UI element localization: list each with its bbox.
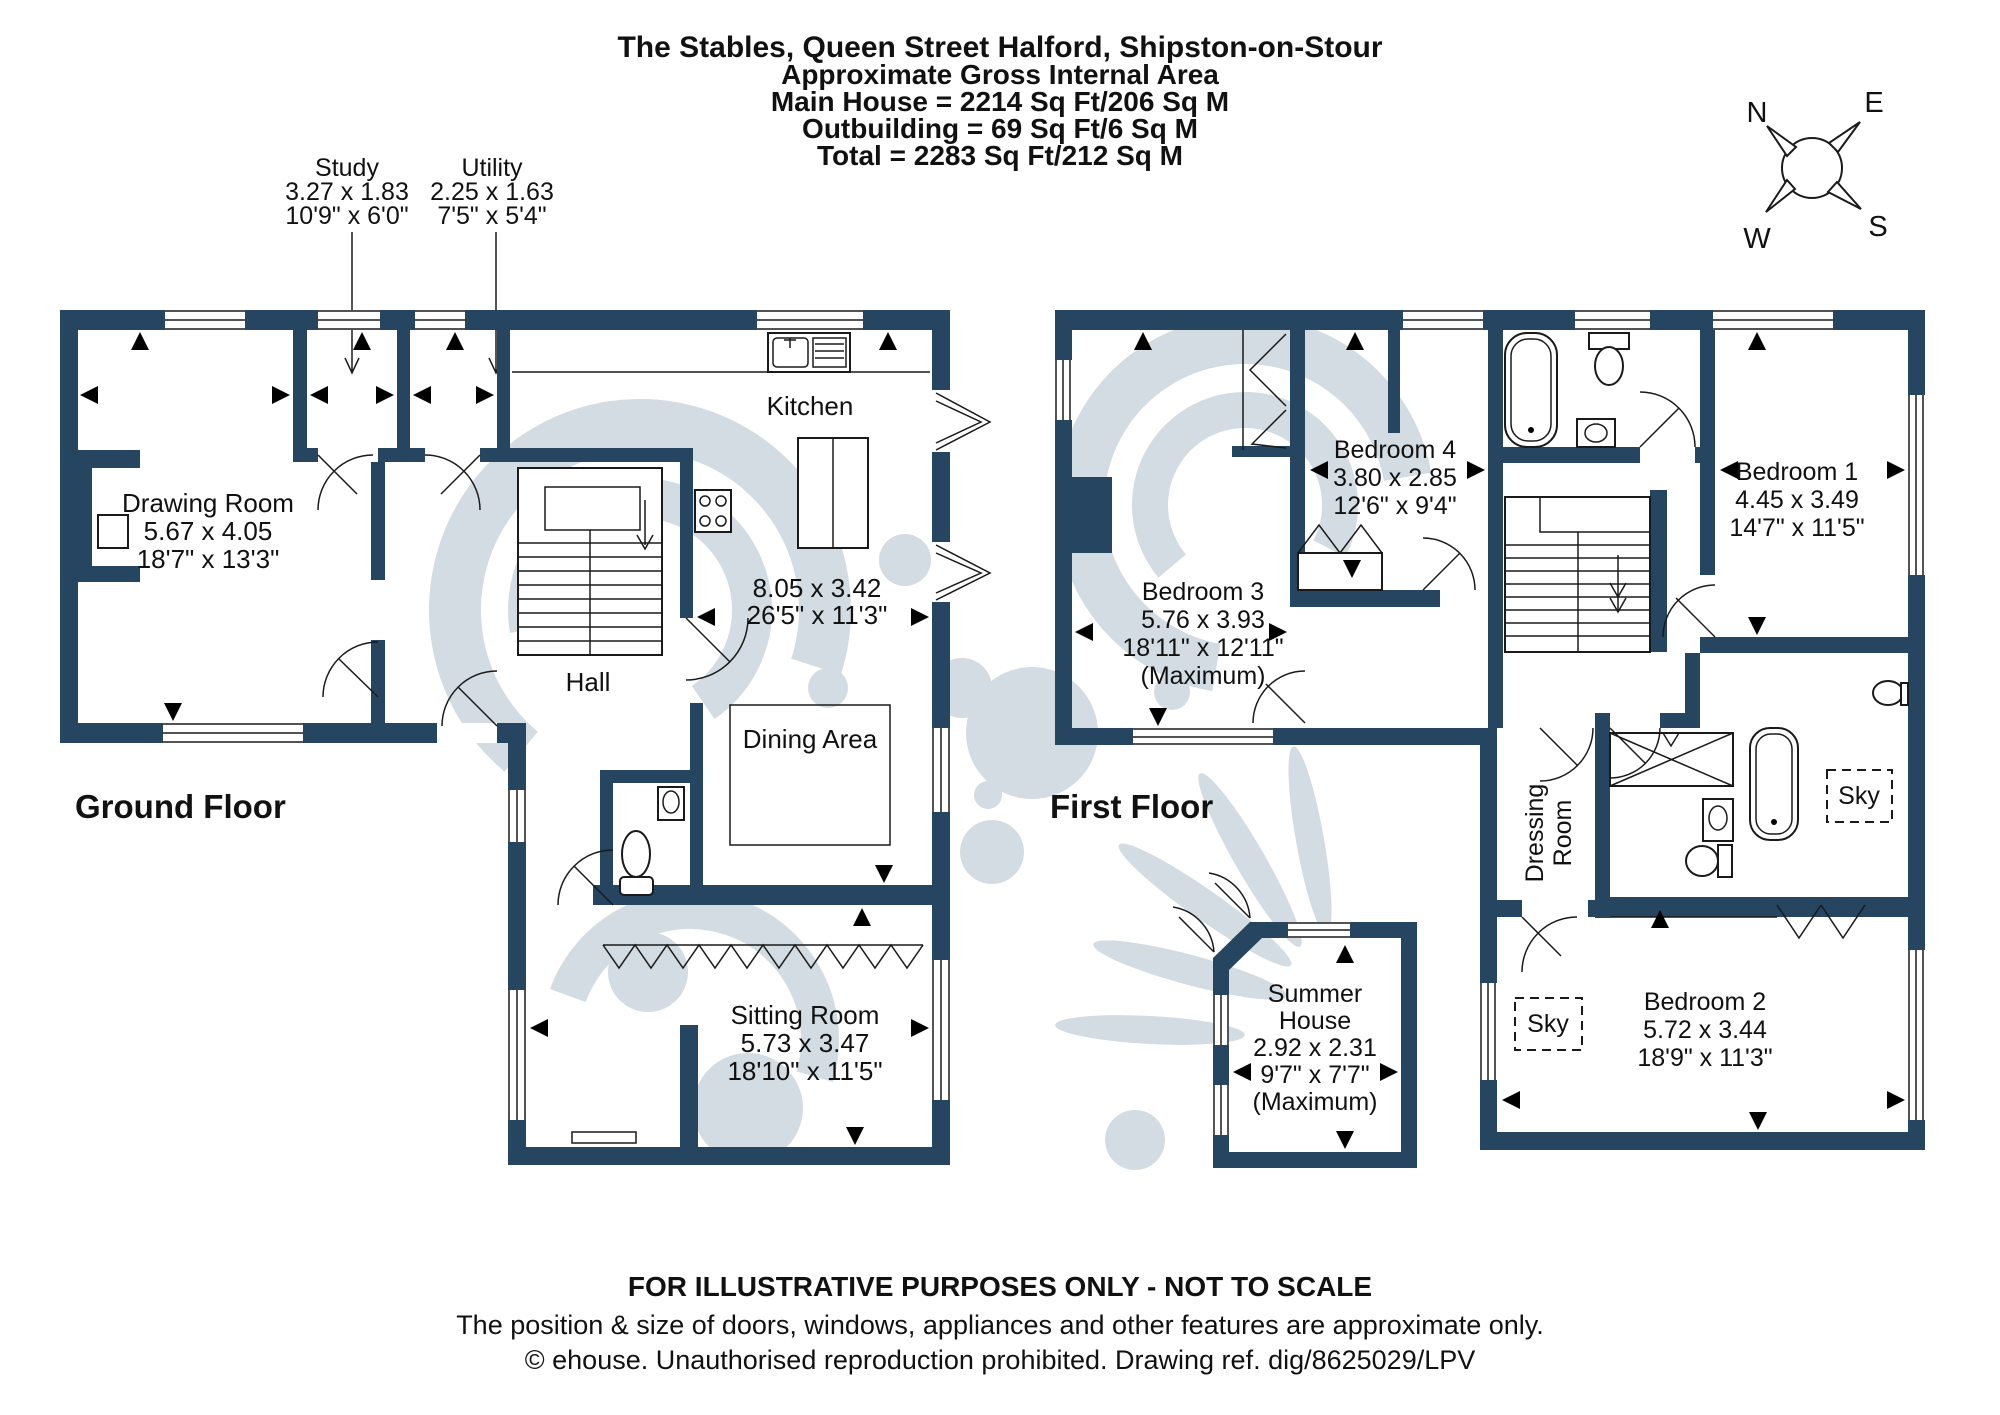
dressing-line2: Room: [1549, 800, 1577, 867]
compass-e-label: E: [1864, 87, 1883, 119]
sitting-room-label: Sitting Room: [731, 1000, 880, 1030]
sitting-room-metric: 5.73 x 3.47: [741, 1028, 870, 1058]
skylight-2: Sky: [1515, 998, 1582, 1050]
footer-line-1: FOR ILLUSTRATIVE PURPOSES ONLY - NOT TO …: [628, 1271, 1372, 1302]
ensuite-toilet: [1686, 845, 1732, 877]
compass-arrow-ne: [1829, 122, 1860, 152]
summer-house-note: (Maximum): [1253, 1088, 1378, 1116]
title-block: The Stables, Queen Street Halford, Ships…: [617, 31, 1382, 171]
drawing-hall-wall: [371, 462, 385, 580]
hall-label: Hall: [566, 667, 611, 697]
bedroom2-imperial: 18'9" x 11'3": [1637, 1044, 1772, 1072]
compass-arrow-sw: [1766, 180, 1795, 212]
ensuite-shower: [1610, 733, 1733, 786]
kitchen-island: [798, 438, 868, 548]
landing-stairs: [1505, 497, 1650, 652]
wc-basin: [658, 787, 684, 820]
bedroom3-chimney: [1072, 477, 1112, 553]
ensuite-basin: [1703, 799, 1733, 841]
kitchen-label: Kitchen: [767, 391, 854, 421]
ensuite-bath: [1750, 728, 1798, 840]
bedroom2-metric: 5.72 x 3.44: [1643, 1016, 1767, 1044]
sitting-room-stub: [680, 1025, 698, 1147]
bedroom1-wall: [1700, 328, 1715, 575]
compass-w-label: W: [1743, 223, 1771, 255]
corner-basin: [1873, 681, 1908, 705]
bedroom1-metric: 4.45 x 3.49: [1735, 486, 1859, 514]
utility-kitchen-wall: [497, 328, 510, 448]
utility-imperial: 7'5" x 5'4": [437, 202, 546, 230]
title-line-5: Total = 2283 Sq Ft/212 Sq M: [817, 140, 1183, 171]
bathroom-toilet: [1589, 333, 1629, 385]
dressing-line1: Dressing: [1521, 784, 1549, 883]
bedroom4-imperial: 12'6" x 9'4": [1333, 492, 1456, 520]
compass-arrow-se: [1828, 182, 1861, 209]
bedroom3-imperial: 18'11" x 12'11": [1122, 634, 1283, 662]
first-floor-label: First Floor: [1050, 788, 1213, 825]
dressing-room-label: Dressing Room: [1521, 784, 1577, 883]
summer-house-line2: House: [1279, 1007, 1351, 1035]
skylight-2-label: Sky: [1527, 1010, 1569, 1038]
kitchen-dining-metric: 8.05 x 3.42: [753, 573, 882, 603]
dressing-ensuite-wall: [1595, 728, 1610, 918]
ground-stairs: [518, 468, 662, 655]
bedroom4-label: Bedroom 4: [1334, 436, 1456, 464]
wc-wall: [600, 770, 703, 783]
footer-line-3: © ehouse. Unauthorised reproduction proh…: [525, 1345, 1476, 1375]
skylight-1: Sky: [1827, 770, 1892, 822]
bedroom3-metric: 5.76 x 3.93: [1141, 606, 1265, 634]
compass-arrow-nw: [1767, 126, 1796, 156]
utility-callout: Utility 2.25 x 1.63 7'5" x 5'4": [430, 154, 554, 373]
floorplan-drawing: The Stables, Queen Street Halford, Ships…: [0, 0, 2000, 1415]
summer-house-imperial: 9'7" x 7'7": [1260, 1061, 1369, 1089]
ground-floor-label: Ground Floor: [75, 788, 286, 825]
kitchen-dining-imperial: 26'5" x 11'3": [747, 600, 888, 630]
compass-rose: N E S W: [1743, 87, 1887, 255]
bedroom1-imperial: 14'7" x 11'5": [1729, 514, 1864, 542]
dining-area-label: Dining Area: [743, 724, 878, 754]
drawing-room-imperial: 18'7" x 13'3": [137, 544, 280, 574]
skylight-1-label: Sky: [1838, 782, 1880, 810]
drawing-room-label: Drawing Room: [122, 488, 294, 518]
bedroom3-label: Bedroom 3: [1142, 578, 1264, 606]
drawing-study-wall: [293, 328, 307, 462]
bedroom3-note: (Maximum): [1141, 662, 1266, 690]
kitchen-sink: [768, 333, 850, 372]
sitting-room-imperial: 18'10" x 11'5": [727, 1056, 882, 1086]
bedroom4-metric: 3.80 x 2.85: [1333, 464, 1457, 492]
bedroom2-label: Bedroom 2: [1644, 988, 1766, 1016]
footer-block: FOR ILLUSTRATIVE PURPOSES ONLY - NOT TO …: [456, 1271, 1544, 1375]
summer-house-metric: 2.92 x 2.31: [1253, 1034, 1377, 1062]
ensuite-bedroom2-wall: [1595, 897, 1908, 917]
footer-line-2: The position & size of doors, windows, a…: [456, 1310, 1544, 1340]
wc-toilet: [620, 831, 653, 895]
bedroom1-label: Bedroom 1: [1736, 458, 1858, 486]
bathroom-basin: [1577, 419, 1615, 447]
floorplan-page: The Stables, Queen Street Halford, Ships…: [0, 0, 2000, 1415]
kitchen-hall-wall: [680, 448, 693, 618]
bathroom-bath: [1505, 333, 1557, 447]
drawing-room-metric: 5.67 x 4.05: [144, 516, 273, 546]
summer-house-line1: Summer: [1268, 980, 1362, 1008]
study-utility-wall: [397, 328, 410, 448]
compass-s-label: S: [1868, 211, 1887, 243]
compass-n-label: N: [1747, 97, 1768, 129]
study-imperial: 10'9" x 6'0": [285, 202, 408, 230]
stove: [695, 490, 731, 532]
